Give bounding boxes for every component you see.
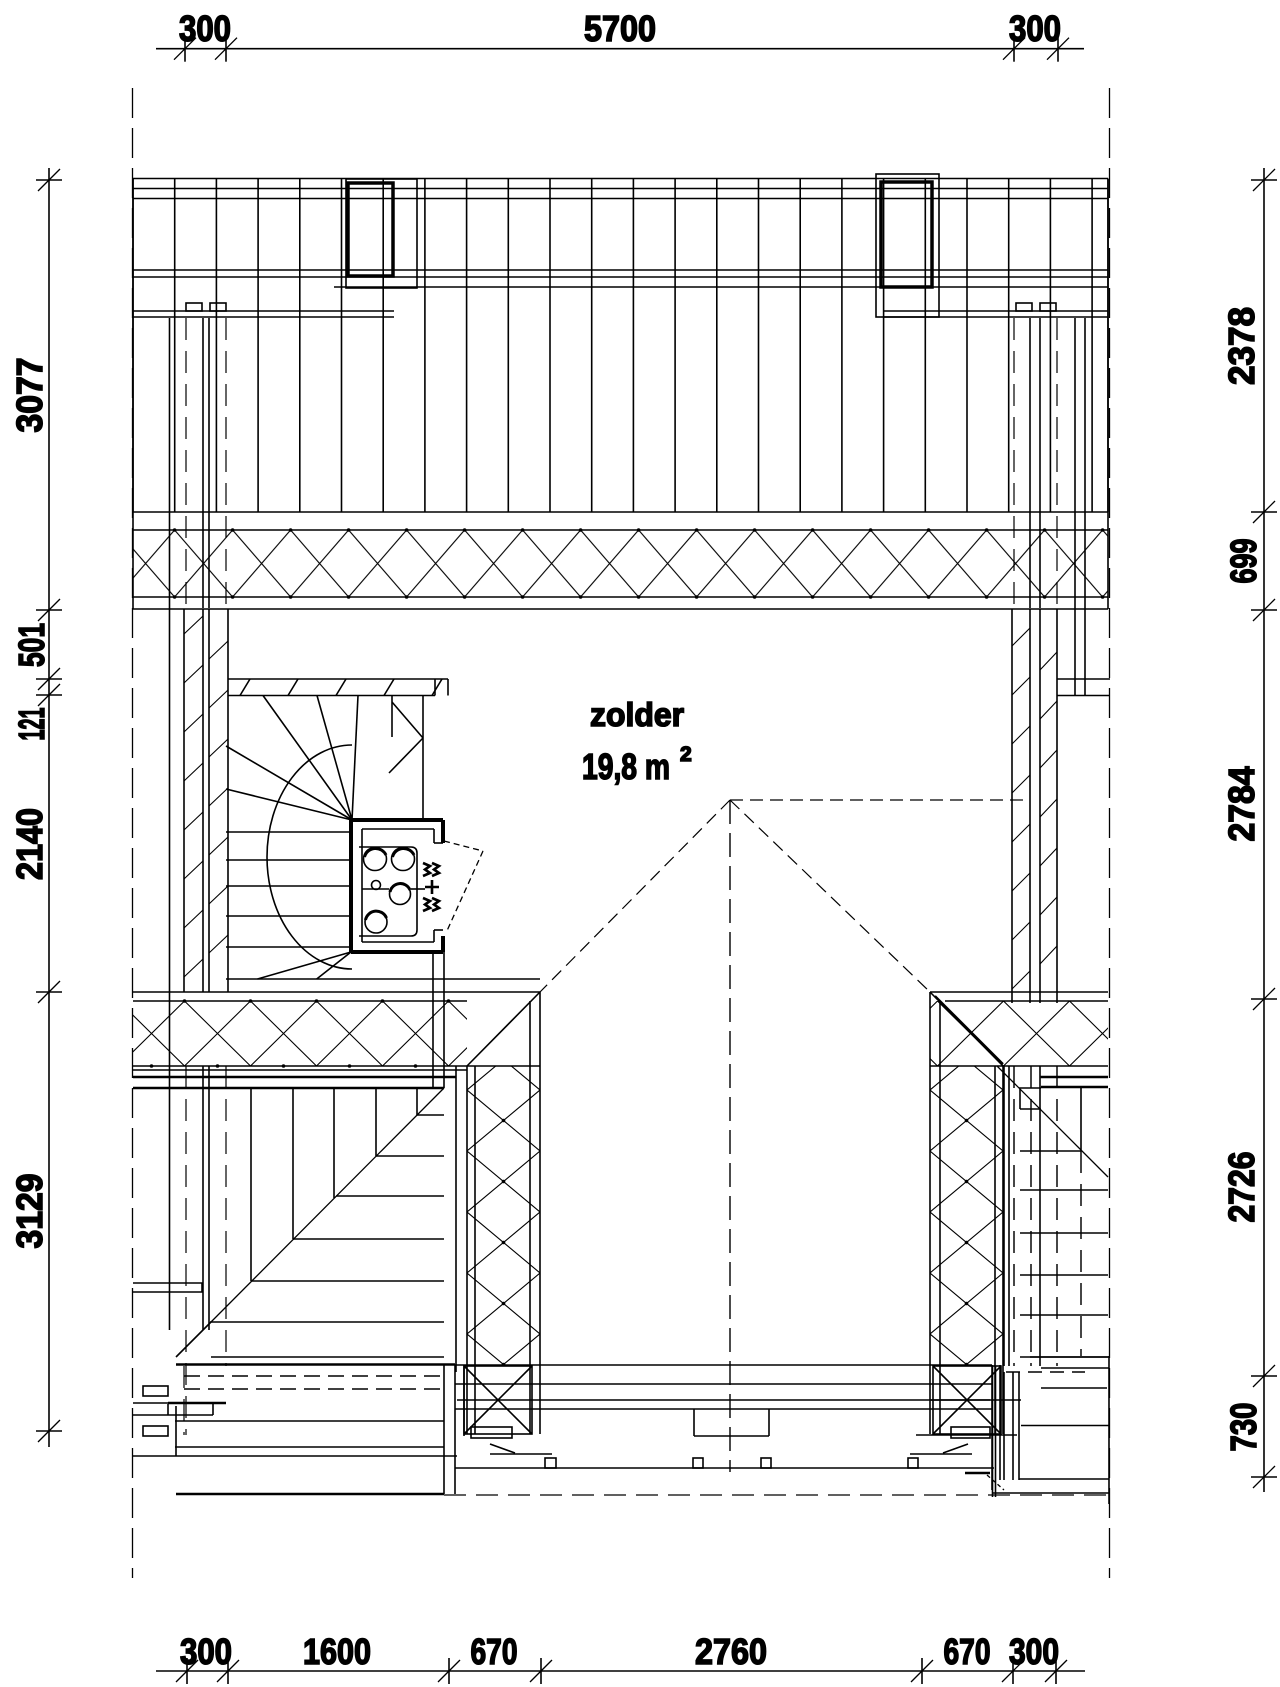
svg-text:699: 699 — [1223, 539, 1264, 584]
svg-text:501: 501 — [11, 623, 52, 667]
svg-text:300: 300 — [179, 8, 231, 49]
svg-text:300: 300 — [180, 1631, 232, 1672]
svg-text:1600: 1600 — [303, 1631, 371, 1672]
svg-text:2760: 2760 — [695, 1631, 767, 1672]
svg-text:730: 730 — [1223, 1403, 1264, 1452]
svg-text:2: 2 — [680, 743, 692, 766]
svg-text:19,8 m: 19,8 m — [582, 746, 670, 787]
svg-text:zolder: zolder — [590, 696, 684, 733]
svg-text:5700: 5700 — [584, 8, 656, 49]
svg-text:3077: 3077 — [9, 358, 50, 433]
svg-text:2140: 2140 — [9, 808, 50, 880]
svg-text:2726: 2726 — [1221, 1152, 1262, 1223]
svg-text:2378: 2378 — [1221, 307, 1262, 385]
svg-text:121: 121 — [11, 708, 52, 741]
svg-text:2784: 2784 — [1221, 767, 1262, 842]
svg-text:670: 670 — [471, 1631, 518, 1672]
svg-text:300: 300 — [1009, 8, 1061, 49]
svg-text:300: 300 — [1009, 1631, 1059, 1672]
svg-text:3129: 3129 — [9, 1174, 50, 1249]
svg-text:670: 670 — [944, 1631, 991, 1672]
